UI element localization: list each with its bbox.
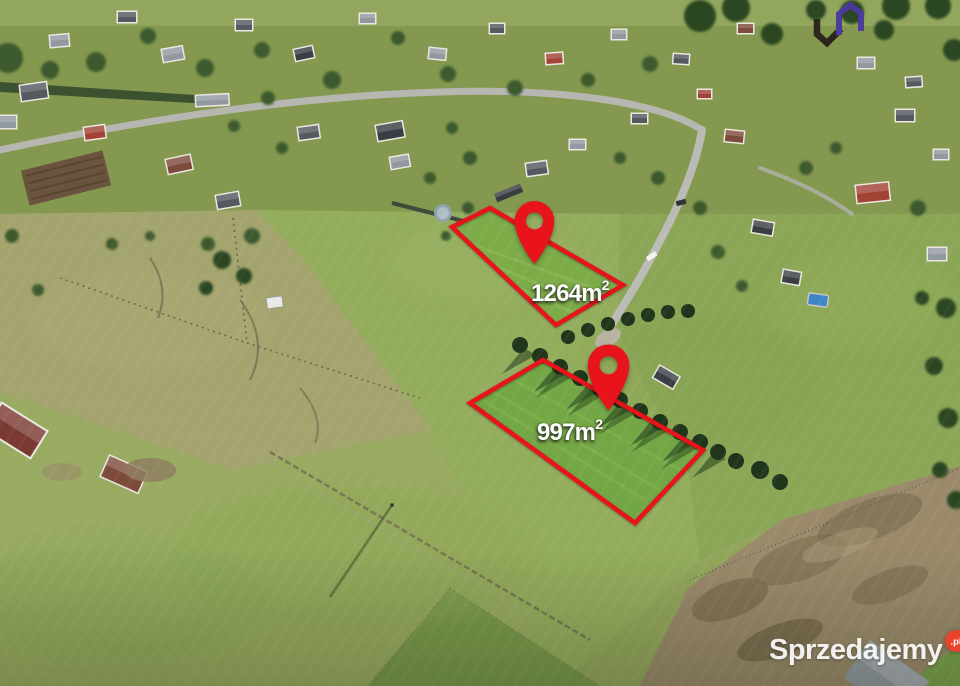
watermark-text: Sprzedajemy (769, 635, 942, 665)
area-label-1264: 1264m2 (531, 276, 609, 305)
aerial-listing-photo: 1264m2 997m2 Sprzedajemy .pl (0, 0, 960, 686)
area-superscript: 2 (602, 277, 610, 293)
brand-logo-icon (804, 0, 870, 52)
watermark-pl-badge: .pl (944, 629, 960, 653)
area-value: 997m (537, 419, 595, 446)
watermark: Sprzedajemy .pl (769, 629, 960, 665)
map-pin-icon (584, 342, 633, 413)
map-pin-icon (511, 199, 558, 266)
area-label-997: 997m2 (537, 415, 603, 444)
aerial-photo-background (0, 0, 960, 686)
area-superscript: 2 (595, 416, 603, 432)
watermark-tld: .pl (951, 637, 960, 648)
area-value: 1264m (531, 280, 602, 307)
